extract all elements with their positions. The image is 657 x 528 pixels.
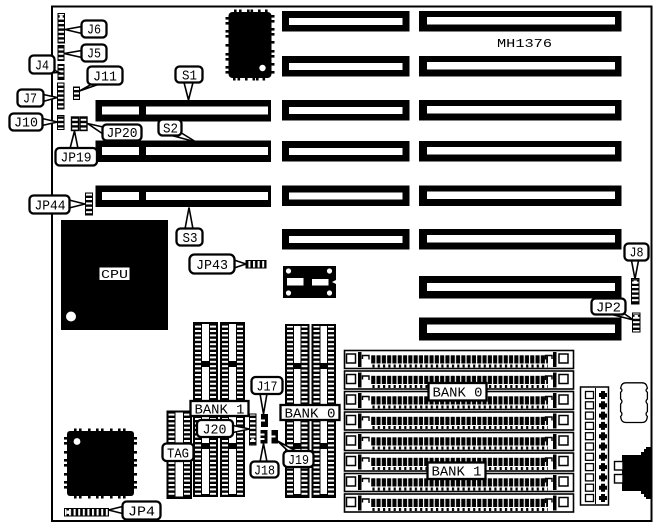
svg-text:TAG: TAG bbox=[167, 448, 189, 463]
svg-text:JP44: JP44 bbox=[35, 200, 66, 215]
svg-text:J17: J17 bbox=[257, 381, 278, 396]
svg-text:J10: J10 bbox=[14, 117, 38, 132]
svg-text:JP4: JP4 bbox=[128, 506, 155, 521]
svg-text:S2: S2 bbox=[163, 123, 178, 138]
svg-text:MH1376: MH1376 bbox=[497, 37, 552, 51]
svg-text:CPU: CPU bbox=[101, 268, 128, 282]
svg-text:BANK 1: BANK 1 bbox=[195, 404, 245, 419]
svg-text:J6: J6 bbox=[87, 24, 101, 39]
svg-text:J18: J18 bbox=[254, 465, 275, 480]
svg-text:J8: J8 bbox=[630, 247, 644, 262]
svg-text:S3: S3 bbox=[183, 232, 198, 247]
svg-text:J11: J11 bbox=[93, 71, 117, 86]
svg-text:J20: J20 bbox=[203, 424, 227, 439]
svg-text:BANK 1: BANK 1 bbox=[432, 466, 482, 481]
svg-text:BANK 0: BANK 0 bbox=[285, 408, 336, 423]
svg-text:J7: J7 bbox=[23, 93, 37, 108]
svg-text:JP19: JP19 bbox=[61, 152, 92, 167]
svg-text:S1: S1 bbox=[182, 70, 197, 85]
svg-text:J4: J4 bbox=[35, 60, 49, 75]
svg-text:JP2: JP2 bbox=[596, 302, 621, 317]
svg-text:J19: J19 bbox=[288, 454, 309, 469]
svg-text:JP20: JP20 bbox=[107, 127, 138, 142]
svg-text:J5: J5 bbox=[87, 48, 101, 63]
svg-text:JP43: JP43 bbox=[196, 259, 228, 274]
svg-text:BANK 0: BANK 0 bbox=[433, 387, 483, 402]
